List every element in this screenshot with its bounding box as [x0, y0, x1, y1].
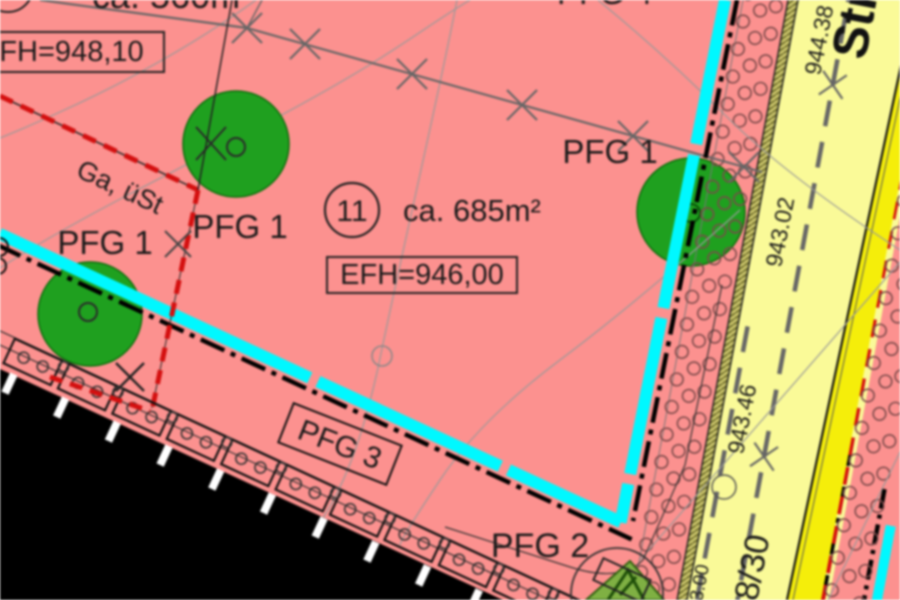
svg-text:PFG 2: PFG 2 — [491, 527, 589, 565]
svg-text:PFG 1: PFG 1 — [57, 224, 152, 261]
svg-text:PFG 4: PFG 4 — [557, 0, 652, 11]
svg-text:EFH=948,10: EFH=948,10 — [0, 36, 144, 68]
svg-text:PFG 1: PFG 1 — [562, 133, 657, 170]
svg-text:EFH=946,00: EFH=946,00 — [340, 259, 504, 291]
svg-text:11: 11 — [336, 195, 367, 228]
svg-text:ca. 560m²: ca. 560m² — [92, 0, 252, 16]
svg-text:ca. 685m²: ca. 685m² — [403, 193, 541, 228]
svg-text:PFG 1: PFG 1 — [192, 208, 287, 245]
